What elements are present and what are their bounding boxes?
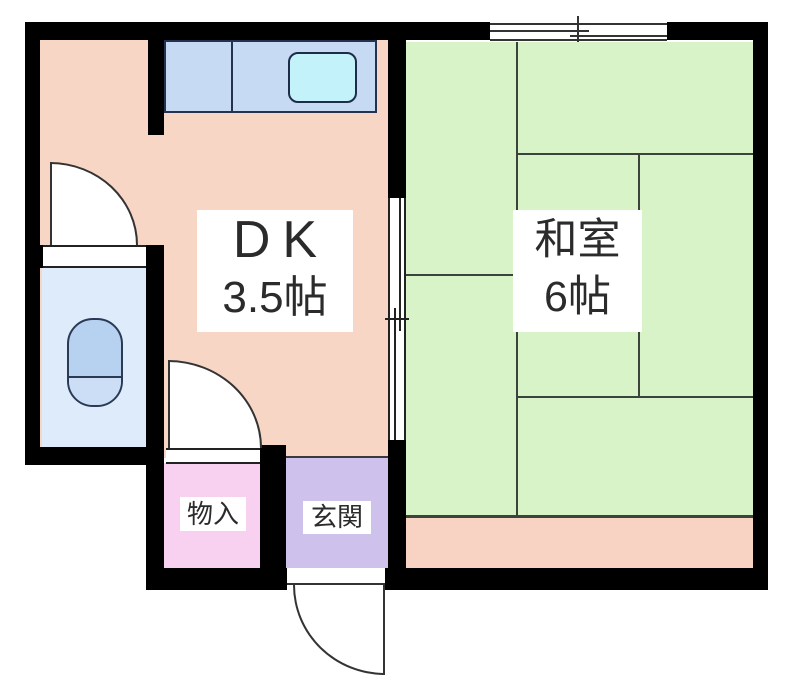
entrance-door-swing-icon [293, 585, 385, 675]
doorway-toilet [43, 245, 146, 268]
window-pane-left [490, 30, 589, 32]
floor-plan: DK 3.5帖 和室 6帖 物入 玄関 [0, 0, 800, 689]
outer-wall-bottom [148, 568, 768, 590]
dk-room-label: DK 3.5帖 [197, 210, 353, 332]
dk-room-name: DK [197, 210, 353, 270]
washitsu-room-name: 和室 [513, 210, 642, 270]
sliding-door-overlap-tick [385, 318, 409, 320]
kitchen-sink-icon [288, 52, 357, 103]
toilet-icon [67, 318, 123, 407]
washitsu-room-size: 6帖 [513, 270, 642, 324]
veranda-strip [406, 515, 753, 568]
kitchen-counter-divider-line [231, 42, 233, 111]
washitsu-room-label: 和室 6帖 [513, 210, 642, 332]
outer-wall-right [753, 22, 768, 590]
window-pane-right [570, 35, 667, 37]
dk-room-size: 3.5帖 [197, 270, 353, 326]
wall-toilet-bottom [25, 447, 164, 465]
wall-storage-left [146, 245, 164, 590]
window-icon [490, 22, 667, 42]
tatami-line-horizontal-2 [518, 396, 753, 398]
wall-entrance-left [260, 445, 286, 590]
storage-room-label: 物入 [180, 497, 246, 531]
entrance-room-label: 玄関 [303, 501, 371, 534]
sliding-door-panel-bottom [394, 308, 396, 440]
sliding-door-panel-top [399, 198, 401, 331]
doorway-storage [166, 448, 260, 464]
tatami-line-horizontal-1 [518, 153, 753, 155]
wall-kitchen-stub [148, 22, 164, 135]
window-center-tick [577, 16, 579, 42]
tatami-line-horizontal-3 [406, 274, 516, 276]
outer-wall-left [25, 22, 40, 465]
toilet-bowl-front [67, 376, 123, 405]
sliding-door-icon [388, 198, 406, 440]
